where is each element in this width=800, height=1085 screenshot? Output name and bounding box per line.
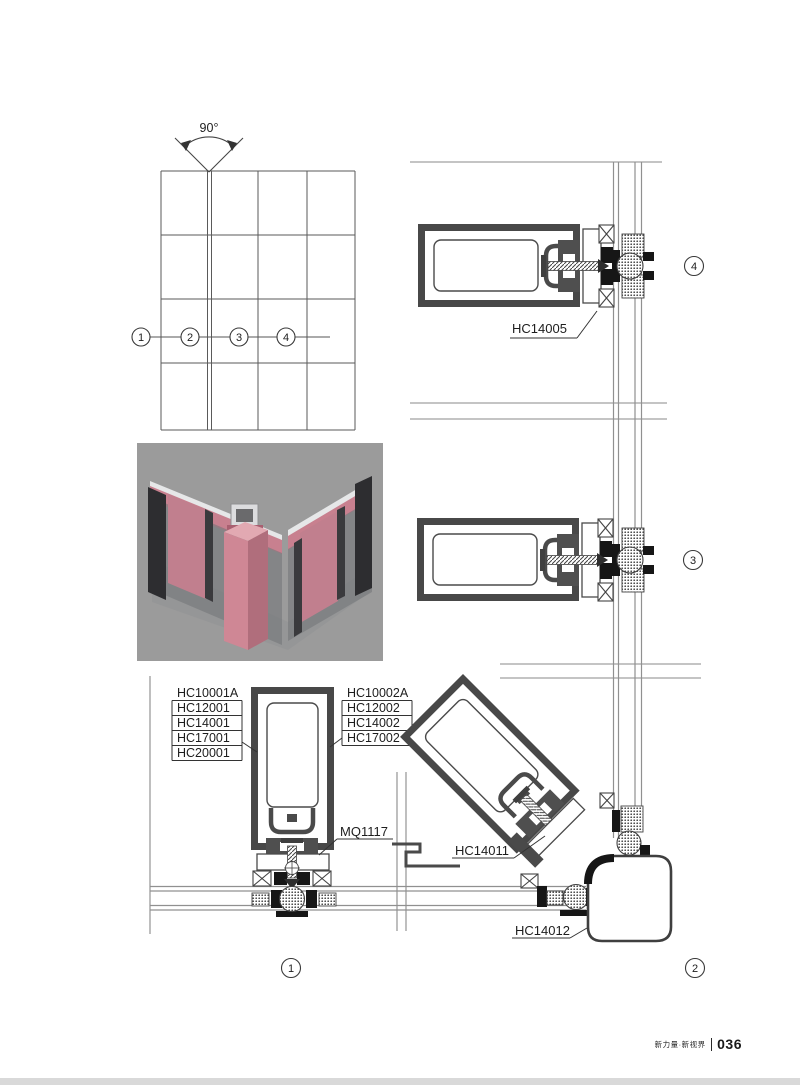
part-label: HC12002 xyxy=(347,701,400,715)
seal-rod xyxy=(564,885,589,910)
brand-slogan: 新力量·新视界 xyxy=(655,1039,706,1050)
left-part-stack: HC10001A HC12001 HC14001 HC17001 HC20001 xyxy=(172,686,257,761)
column-side xyxy=(248,530,268,650)
part-label: HC17002 xyxy=(347,731,400,745)
glazing-block xyxy=(521,874,538,888)
part-label: HC14002 xyxy=(347,716,400,730)
bolt xyxy=(547,556,599,565)
callout-3: 3 xyxy=(236,332,242,344)
seal-rod xyxy=(617,547,643,573)
left-dark-mullion xyxy=(148,487,166,600)
detail-number: 2 xyxy=(692,963,698,975)
page-bottom-strip xyxy=(0,1078,800,1085)
part-label: HC20001 xyxy=(177,746,230,760)
part-label: HC10002A xyxy=(347,686,409,700)
part-label: HC10001A xyxy=(177,686,239,700)
seal-rod xyxy=(617,253,643,279)
seal-rod xyxy=(280,887,305,912)
part-label: HC12001 xyxy=(177,701,230,715)
gasket xyxy=(621,806,643,832)
angle-label: 90° xyxy=(200,121,219,135)
column-front xyxy=(224,532,248,650)
part-label: HC17001 xyxy=(177,731,230,745)
detail-number: 1 xyxy=(288,963,294,975)
part-label: HC14001 xyxy=(177,716,230,730)
glass-horizontal xyxy=(150,887,586,911)
detail-4: HC14005 4 xyxy=(422,225,704,338)
page-number: 036 xyxy=(717,1036,742,1052)
bolt xyxy=(548,262,600,271)
gasket xyxy=(252,893,269,906)
callout-1: 1 xyxy=(138,332,144,344)
detail-3: 3 xyxy=(421,519,703,601)
detail-2: HC14011 HC14012 2 xyxy=(392,679,705,978)
gasket xyxy=(319,893,336,906)
footer-divider xyxy=(711,1038,713,1051)
seal-rod xyxy=(617,831,641,855)
right-dark-mullion xyxy=(355,476,372,596)
gasket xyxy=(547,891,563,905)
mullion-tube xyxy=(255,691,331,847)
angle-annotation: 90° xyxy=(175,121,243,172)
part-label-hc14005: HC14005 xyxy=(512,321,567,336)
right-part-stack: HC10002A HC12002 HC14002 HC17002 xyxy=(330,686,412,747)
detail-number: 4 xyxy=(691,261,697,273)
part-label-hc14011: HC14011 xyxy=(455,843,509,858)
part-label-mq1117: MQ1117 xyxy=(340,824,388,839)
left-pink-panel xyxy=(168,494,206,599)
detail-1: HC10001A HC12001 HC14001 HC17001 HC20001… xyxy=(172,686,412,978)
technical-drawing: 90° 1 2 3 4 xyxy=(0,0,800,1085)
corner-tube xyxy=(588,856,671,941)
render-3d-image xyxy=(137,443,383,661)
glazing-block xyxy=(600,793,614,808)
callout-4: 4 xyxy=(283,332,289,344)
page-footer: 新力量·新视界 036 xyxy=(655,1036,742,1052)
part-label-hc14012: HC14012 xyxy=(515,923,570,938)
callout-2: 2 xyxy=(187,332,193,344)
elevation-grid xyxy=(161,171,355,430)
elevation-callouts: 1 2 3 4 xyxy=(132,328,330,346)
catalog-page: 90° 1 2 3 4 xyxy=(0,0,800,1085)
detail-number: 3 xyxy=(690,555,696,567)
